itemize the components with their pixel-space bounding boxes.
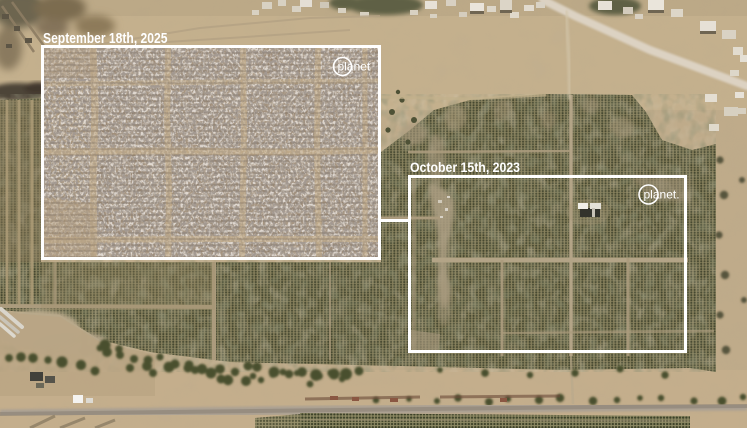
svg-text:planet.: planet. bbox=[644, 188, 680, 202]
svg-text:planet: planet bbox=[338, 60, 371, 74]
